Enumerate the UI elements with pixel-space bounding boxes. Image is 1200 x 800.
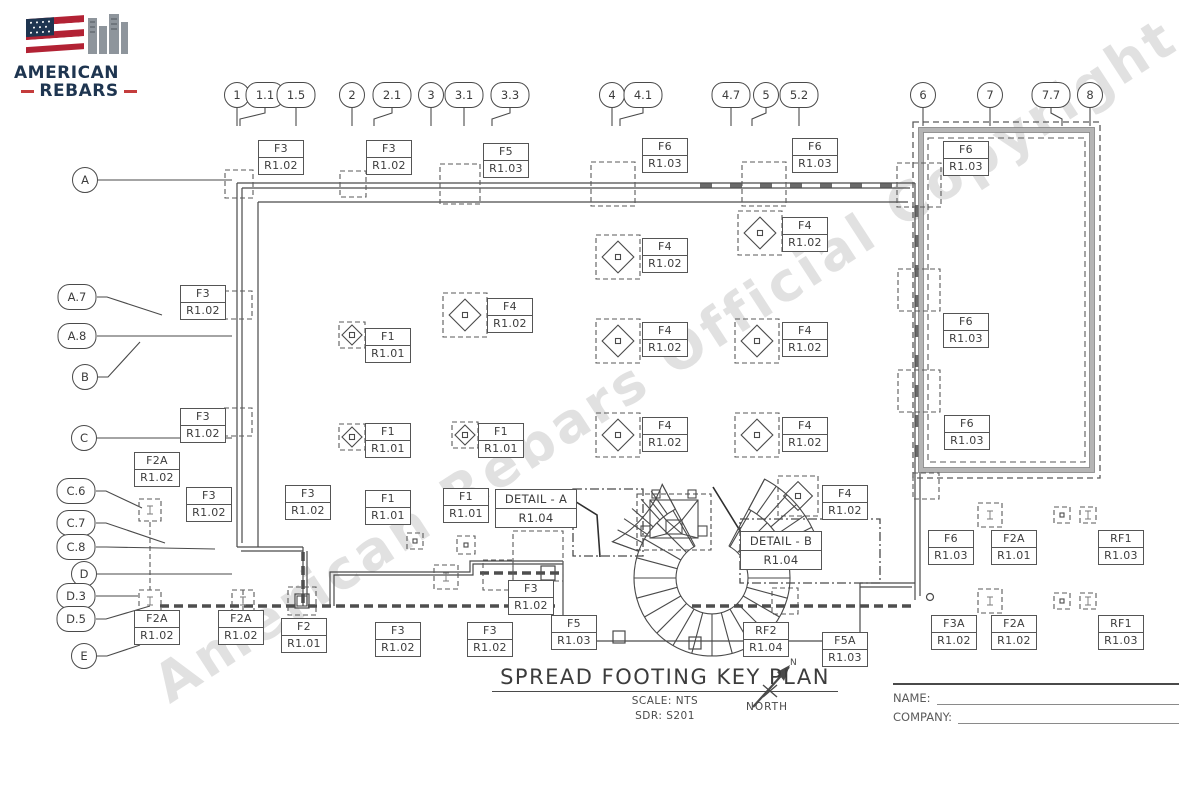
i-beam-icon	[147, 597, 153, 605]
column-footprint-square	[339, 322, 365, 348]
column-diamond-icon	[602, 419, 634, 451]
wall-column-square	[225, 170, 253, 198]
column-leader	[374, 107, 392, 126]
stair-tread	[645, 539, 681, 560]
column-leader	[492, 107, 510, 126]
logo-dash-left	[21, 90, 34, 93]
column-diamond-icon	[449, 299, 481, 331]
column-leader	[240, 107, 265, 126]
detail-boundaries	[573, 489, 880, 583]
name-input-line[interactable]	[937, 692, 1179, 705]
stair-tread	[747, 587, 788, 598]
logo-line1: AMERICAN	[14, 64, 144, 82]
drawing-title: SPREAD FOOTING KEY PLAN	[492, 665, 838, 692]
drawing-canvas: American Rebars Official Copyright	[0, 0, 1200, 800]
flag-buildings-icon	[14, 8, 134, 60]
name-label: NAME:	[893, 691, 931, 705]
wall-column-square	[772, 588, 798, 614]
wall-column-square	[440, 164, 480, 204]
pier-square	[407, 533, 423, 549]
pier-square	[1054, 593, 1070, 609]
dashed-connectors	[150, 522, 243, 612]
north-label: NORTH	[746, 701, 788, 713]
i-beam-icon	[147, 506, 153, 514]
signature-block: NAME: COMPANY:	[893, 683, 1179, 729]
drawing-sdr: SDR: S201	[455, 710, 875, 722]
company-label: COMPANY:	[893, 710, 952, 724]
column-footprint-square	[339, 424, 365, 450]
column-footprint-square	[452, 422, 478, 448]
column-diamond-icon	[741, 325, 773, 357]
company-input-line[interactable]	[958, 711, 1179, 724]
north-n-label: N	[790, 658, 797, 668]
column-leader	[1051, 107, 1062, 126]
i-beam-icon	[987, 597, 993, 605]
wall-column-square	[591, 162, 635, 206]
company-row: COMPANY:	[893, 710, 1179, 724]
company-logo: AMERICAN REBARS	[14, 8, 144, 100]
column-diamond-icon	[602, 325, 634, 357]
wall-column-square	[224, 291, 252, 319]
stair-tread	[743, 539, 779, 560]
stair-tread	[645, 596, 681, 617]
stair-tread	[637, 587, 678, 598]
stair-tread	[730, 511, 751, 547]
row-leader	[96, 491, 142, 508]
column-diamond-icon	[741, 419, 773, 451]
i-beam-icon	[987, 511, 993, 519]
column-leader	[752, 107, 766, 126]
i-beam-icon	[443, 573, 449, 581]
column-diamond-icon	[455, 425, 475, 445]
stair-tread	[673, 609, 694, 645]
logo-line2: REBARS	[14, 82, 144, 100]
wall-column-square	[224, 408, 252, 436]
column-leader	[620, 107, 643, 126]
i-beam-icon	[240, 597, 246, 605]
i-beam-icon	[1085, 511, 1091, 519]
row-leader	[97, 645, 140, 656]
drawing-scale: SCALE: NTS	[455, 695, 875, 707]
column-diamond-icon	[342, 325, 362, 345]
column-diamond-icon	[744, 217, 776, 249]
title-block: SPREAD FOOTING KEY PLAN SCALE: NTS SDR: …	[455, 665, 875, 722]
stair-tread	[657, 604, 687, 634]
stair-tread	[637, 558, 678, 569]
row-leader	[97, 297, 162, 315]
column-diamond-icon	[342, 427, 362, 447]
building-walls	[237, 183, 934, 649]
name-row: NAME:	[893, 691, 1179, 705]
logo-dash-right	[124, 90, 137, 93]
pier-square	[457, 536, 475, 554]
stair-tread	[721, 613, 732, 654]
row-leader	[98, 342, 140, 377]
row-leader	[96, 523, 165, 543]
stair-tread	[738, 523, 768, 553]
grade-beam-dashed	[160, 552, 912, 606]
wall-column-square	[913, 473, 939, 499]
wall-tick-marks	[700, 186, 918, 471]
column-diamond-icon	[602, 241, 634, 273]
stair-tread	[738, 604, 768, 634]
row-leader	[96, 606, 150, 619]
row-leader	[96, 547, 215, 549]
wall-column-square	[340, 171, 366, 197]
stair-tread	[730, 609, 751, 645]
pier-square	[1054, 507, 1070, 523]
i-beam-icon	[1085, 597, 1091, 605]
stair-tread	[747, 558, 788, 569]
